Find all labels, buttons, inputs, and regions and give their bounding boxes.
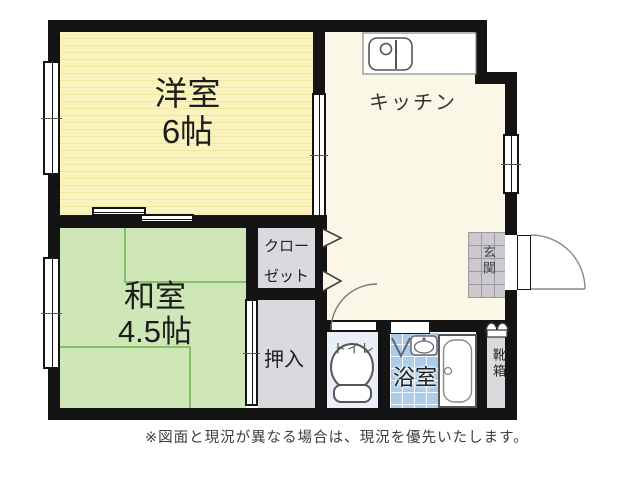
- japanese-room-label: 和室 4.5帖: [65, 280, 245, 349]
- entrance-label: 玄関: [479, 245, 498, 277]
- sliding-door-western-kitchen: [312, 93, 326, 217]
- wall-toilet-bath: [378, 332, 390, 408]
- window-kitchen-right: [503, 134, 519, 194]
- toilet-label: トイレ: [333, 338, 375, 357]
- bath-label: 浴室: [393, 360, 437, 392]
- western-room-size: 6帖: [162, 113, 213, 151]
- entrance-door-arc: [531, 235, 585, 289]
- wall-western-kitchen: [313, 32, 325, 95]
- sliding-door-western-japanese-panel2: [140, 214, 194, 223]
- outer-wall-top: [48, 20, 487, 32]
- kitchen-floor: [325, 32, 475, 320]
- bath-sliding-door: [390, 321, 430, 334]
- sliding-door-oshiire: [245, 299, 258, 406]
- tatami-seam: [124, 228, 126, 282]
- kitchen-label: キッチン: [369, 86, 457, 115]
- floorplan: 洋室 6帖 キッチン 和室 4.5帖 クロー ゼット 押入 トイレ 浴室 靴箱 …: [0, 0, 640, 480]
- wall-closet-right: [315, 215, 327, 420]
- japanese-room-size: 4.5帖: [118, 315, 192, 350]
- outer-wall-bottom: [48, 408, 517, 420]
- wall-bath-shoebox: [476, 332, 487, 408]
- western-room-label: 洋室 6帖: [80, 75, 295, 151]
- oshiire-label: 押入: [264, 343, 304, 372]
- closet-label: クロー ゼット: [258, 232, 315, 292]
- sliding-door-western-japanese-panel1: [92, 207, 146, 216]
- entrance-door-opening: [517, 235, 531, 290]
- window-western-left: [43, 61, 60, 175]
- disclaimer-text: ※図面と現況が異なる場合は、現況を優先いたします。: [145, 426, 529, 447]
- tatami-seam: [189, 346, 191, 408]
- shoebox-label: 靴箱: [489, 348, 508, 380]
- toilet-door-leaf: [331, 321, 377, 331]
- window-japanese-left: [43, 257, 60, 369]
